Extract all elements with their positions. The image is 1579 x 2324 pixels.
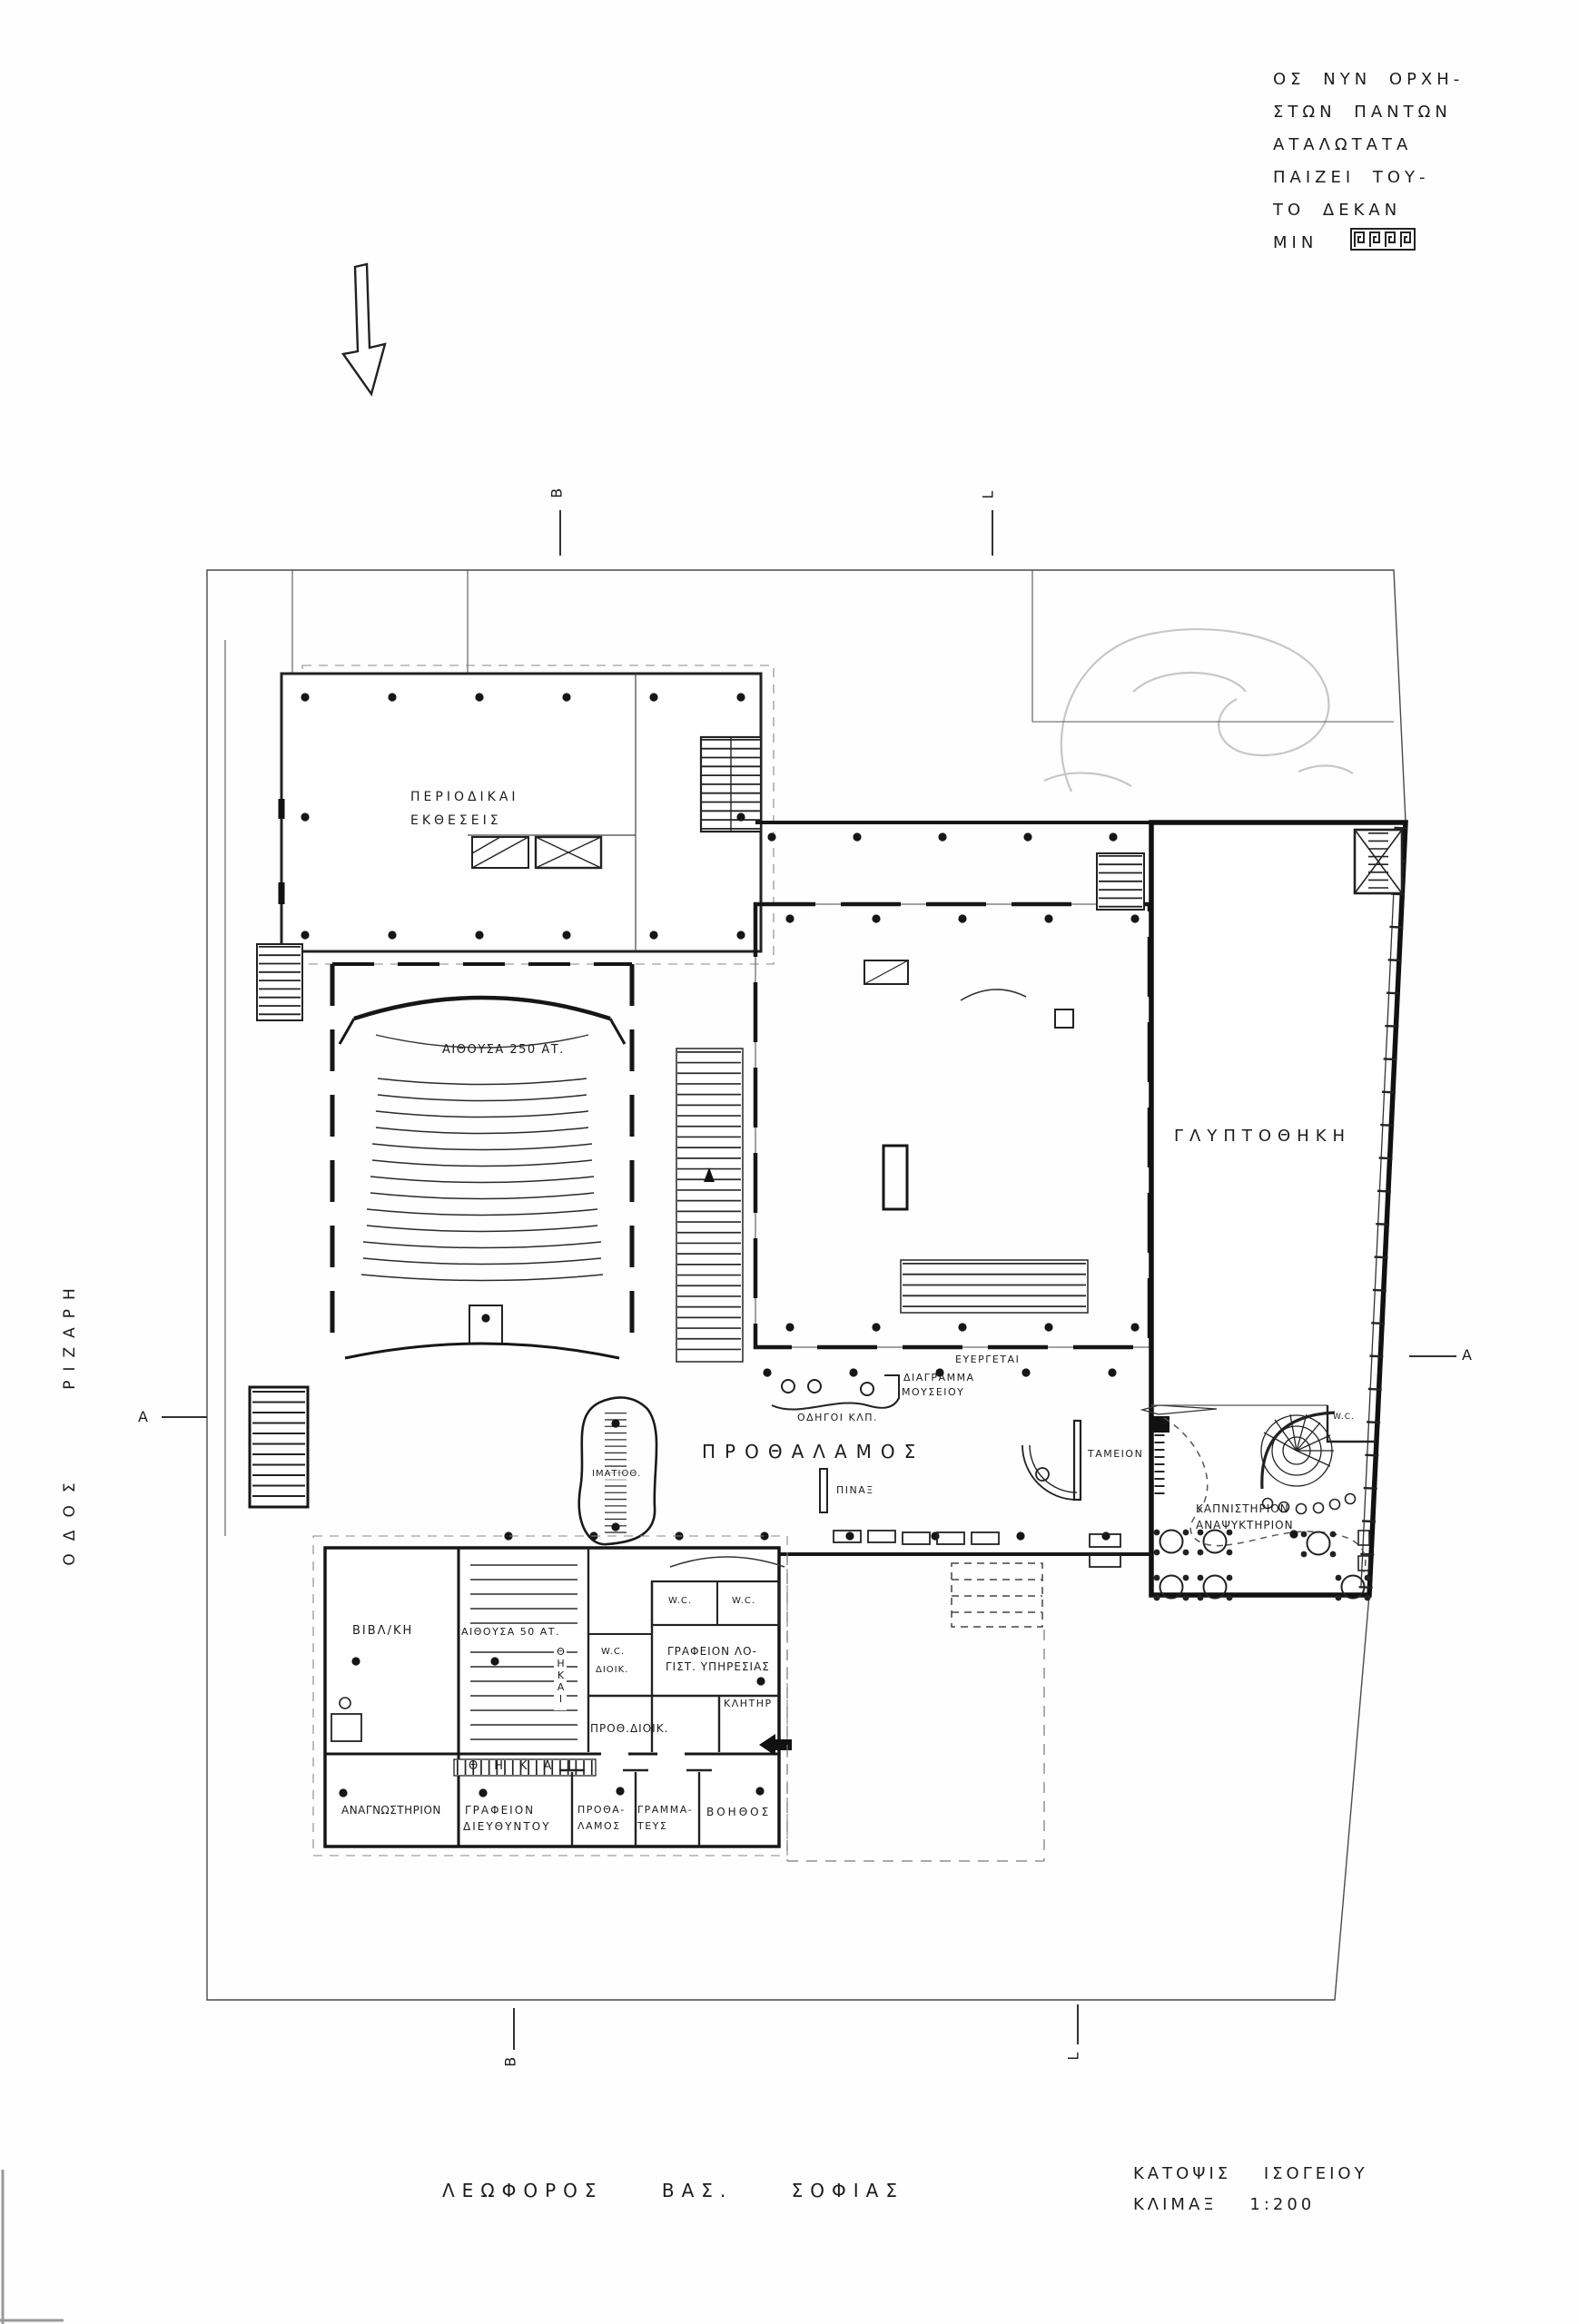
room-label-library: ΒΙΒΛ/ΚΗ bbox=[352, 1625, 413, 1639]
room-label-director: ΓΡΑΦΕΙΟΝ bbox=[465, 1805, 535, 1817]
room-label-anteroom: ΛΑΜΟΣ bbox=[577, 1821, 621, 1833]
section-marker-l: L bbox=[984, 487, 992, 503]
sculpture-wing bbox=[1151, 822, 1406, 1595]
room-label-periodicals: ΠΕΡΙΟΔΙΚΑΙ bbox=[410, 790, 519, 804]
lobby-benches bbox=[834, 1531, 1120, 1567]
label-museum-diagram: ΔΙΑΓΡΑΜΜΑ bbox=[903, 1373, 975, 1384]
street-name-vas-sofias: ΛΕΩΦΟΡΟΣ ΒΑΣ. ΣΟΦΙΑΣ bbox=[442, 2181, 904, 2201]
section-marker-l: L bbox=[1070, 2048, 1078, 2064]
room-label-wc: W.C. bbox=[601, 1647, 625, 1658]
room-label-wc: W.C. bbox=[732, 1596, 755, 1607]
room-label-director: ΔΙΕΥΘΥΝΤΟΥ bbox=[463, 1821, 551, 1834]
inscription-line: ΤΟ ΔΕΚΑΝ bbox=[1273, 194, 1464, 227]
ramp-stair bbox=[676, 1049, 743, 1362]
drawing-scale: ΚΛΙΜΑΞ 1:200 bbox=[1133, 2190, 1368, 2221]
inscription-line: ΟΣ ΝΥΝ ΟΡΧΗ- bbox=[1273, 64, 1464, 96]
room-label-sculpture-gallery: ΓΛΥΠΤΟΘΗΚΗ bbox=[1174, 1128, 1351, 1147]
label-cases-band: ΘΗΚΑΙ bbox=[469, 1760, 587, 1774]
auditorium-seating bbox=[361, 1078, 603, 1281]
section-marker-b: Β bbox=[506, 2053, 516, 2070]
stair-museum-hall bbox=[901, 1260, 1088, 1313]
room-label-reading-room: ΑΝΑΓΝΩΣΤΗΡΙΟΝ bbox=[341, 1805, 441, 1817]
section-marker-a: Α bbox=[1462, 1347, 1472, 1364]
section-marker-b: Β bbox=[552, 485, 562, 501]
street-name-odos: ΟΔΟΣ bbox=[62, 1470, 80, 1565]
room-label-cloakroom: ΙΜΑΤΙΟΘ. bbox=[592, 1469, 641, 1480]
notice-board bbox=[820, 1469, 827, 1512]
room-label-secretary: ΤΕΥΣ bbox=[637, 1821, 667, 1833]
garden-sketch bbox=[1044, 629, 1353, 792]
north-arrow-icon bbox=[343, 264, 385, 394]
label-guides: ΟΔΗΓΟΙ ΚΛΠ. bbox=[797, 1413, 878, 1424]
room-label-auditorium: ΑΙΘΟΥΣΑ 250 ΑΤ. bbox=[442, 1044, 565, 1058]
meander-ornament bbox=[1350, 228, 1417, 251]
room-label-smoking: ΚΑΠΝΙΣΤΗΡΙΟΝ bbox=[1196, 1503, 1289, 1516]
scan-artifacts bbox=[0, 2170, 64, 2324]
room-label-usher: ΚΛΗΤΗΡ bbox=[724, 1699, 773, 1710]
stair-exterior-west bbox=[257, 944, 302, 1020]
cashier-turnstile bbox=[1022, 1421, 1081, 1500]
stair-street-west bbox=[250, 1387, 308, 1507]
room-label-periodicals: ΕΚΘΕΣΕΙΣ bbox=[410, 813, 502, 828]
room-label-wc: W.C. bbox=[1333, 1413, 1355, 1422]
room-label-cashier: ΤΑΜΕΙΟΝ bbox=[1088, 1449, 1143, 1461]
inscription-line: ΜΙΝ bbox=[1273, 227, 1464, 260]
street-name-rizari: ΡΙΖΑΡΗ bbox=[62, 1279, 80, 1390]
room-label-wc-admin: ΔΙΟΙΚ. bbox=[596, 1665, 628, 1676]
guides-stand bbox=[772, 1375, 899, 1410]
room-label-smoking: ΑΝΑΨΥΚΤΗΡΙΟΝ bbox=[1196, 1520, 1294, 1532]
auditorium bbox=[332, 964, 632, 1358]
inscription-line: ΠΑΙΖΕΙ ΤΟΥ- bbox=[1273, 162, 1464, 194]
room-label-anteroom: ΠΡΟΘΑ- bbox=[577, 1805, 626, 1817]
drawing-title: ΚΑΤΟΨΙΣ ΙΣΟΓΕΙΟΥ bbox=[1133, 2159, 1368, 2190]
section-marker-a: Α bbox=[138, 1409, 148, 1425]
inscription-line: ΑΤΑΛΩΤΑΤΑ bbox=[1273, 129, 1464, 162]
stair-wing-a bbox=[701, 737, 761, 832]
room-label-hall-50: ΑΙΘΟΥΣΑ 50 ΑΤ. bbox=[461, 1627, 560, 1639]
inscription-line: ΣΤΩΝ ΠΑΝΤΩΝ bbox=[1273, 96, 1464, 129]
floor-plan-drawing bbox=[0, 0, 1579, 2324]
room-label-accounting: ΓΙΣΤ. ΥΠΗΡΕΣΙΑΣ bbox=[666, 1661, 770, 1674]
room-label-accounting: ΓΡΑΦΕΙΟΝ ΛΟ- bbox=[667, 1646, 757, 1659]
architectural-plan-sheet: ΟΣ ΝΥΝ ΟΡΧΗ- ΣΤΩΝ ΠΑΝΤΩΝ ΑΤΑΛΩΤΑΤΑ ΠΑΙΖΕ… bbox=[0, 0, 1579, 2324]
room-label-wc: W.C. bbox=[668, 1596, 692, 1607]
inscription-block: ΟΣ ΝΥΝ ΟΡΧΗ- ΣΤΩΝ ΠΑΝΤΩΝ ΑΤΑΛΩΤΑΤΑ ΠΑΙΖΕ… bbox=[1273, 64, 1464, 260]
stair-terrace bbox=[1097, 853, 1144, 910]
room-label-admin-hall: ΠΡΟΘ.ΔΙΟΙΚ. bbox=[590, 1723, 668, 1736]
room-label-lobby: ΠΡΟΘΑΛΑΜΟΣ bbox=[702, 1442, 924, 1462]
room-label-board: ΠΙΝΑΞ bbox=[836, 1485, 874, 1497]
entrance-steps bbox=[952, 1563, 1042, 1627]
museum-hall bbox=[755, 904, 1150, 1347]
room-label-secretary: ΓΡΑΜΜΑ- bbox=[637, 1805, 693, 1817]
title-block: ΚΑΤΟΨΙΣ ΙΣΟΓΕΙΟΥ ΚΛΙΜΑΞ 1:200 bbox=[1133, 2159, 1368, 2221]
label-benefactors: ΕΥΕΡΓΕΤΑΙ bbox=[955, 1354, 1020, 1366]
label-museum-diagram: ΜΟΥΣΕΙΟΥ bbox=[902, 1387, 964, 1399]
room-label-assistant: ΒΟΗΘΟΣ bbox=[706, 1807, 771, 1819]
label-cases-vertical: ΘΗΚΑΙ bbox=[554, 1640, 567, 1710]
